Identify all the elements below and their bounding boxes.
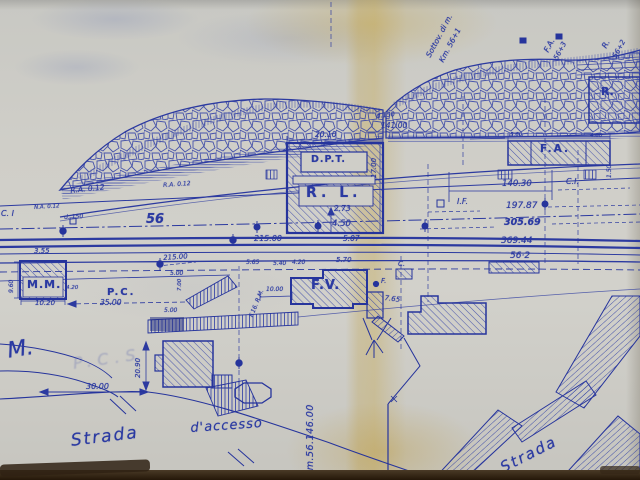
label-dim-1000: 10.00 xyxy=(266,287,283,293)
label-dim-30569: 305.69 xyxy=(504,218,541,228)
label-m-cursive: M. xyxy=(6,337,35,363)
label-dim-420-a: 4.20 xyxy=(66,286,78,292)
label-hectometer-56: 56 xyxy=(146,213,164,226)
label-dim-1020: 10.20 xyxy=(35,300,55,307)
label-dim-570: 5.70 xyxy=(336,257,352,264)
label-building-dpt: D.P.T. xyxy=(311,155,346,165)
label-dim-14030: 140.30 xyxy=(502,180,532,189)
label-dim-273: 2.73 xyxy=(334,205,351,213)
label-dim-3000: 30.00 xyxy=(86,383,109,391)
label-ci-left: C. I xyxy=(1,210,14,218)
label-dim-19787: 197.87 xyxy=(506,202,538,211)
label-building-rl: R. L. xyxy=(306,186,361,200)
label-dim-2090: 20.90 xyxy=(135,358,142,378)
label-building-mm: M.M. xyxy=(27,279,61,290)
label-dim-355: 3.55 xyxy=(34,248,50,255)
photo-bottom-right-shadow xyxy=(600,466,640,474)
label-dim-960: 9.60 xyxy=(9,280,15,293)
label-dim-2010: 20.10 xyxy=(315,131,336,139)
label-dim-3500: 35.00 xyxy=(100,299,121,307)
label-building-pc: P.C. xyxy=(107,288,135,298)
label-dim-1700: 17.00 xyxy=(371,158,378,178)
label-f-small: F. xyxy=(381,278,386,285)
label-building-r: R. xyxy=(601,86,614,97)
label-dim-420-b: 4.20 xyxy=(292,260,305,266)
drawing-linework xyxy=(0,0,640,480)
label-dim-450: 4.50 xyxy=(332,220,351,229)
label-building-fa: F.A. xyxy=(540,144,570,155)
label-dim-507: 5.07 xyxy=(343,235,360,243)
label-dim-500-a: 5.00 xyxy=(170,271,183,277)
label-c-small: C. xyxy=(398,261,405,268)
label-d150-top: d.150 xyxy=(376,111,395,119)
label-ci-right: C.I. xyxy=(566,178,579,186)
label-dim-565: 5.65 xyxy=(246,260,259,266)
label-dim-141: 141.00 xyxy=(381,122,407,130)
blueprint-photo: Sottov. di m. Km. 56+1 F.A. 56+3 R. 56+2… xyxy=(0,0,640,480)
label-dim-500-b: 5.00 xyxy=(164,308,177,314)
label-dim-21500-center: 215.00 xyxy=(254,235,282,243)
label-hectometer-562: 56·2 xyxy=(510,252,530,261)
label-dim-150-vertical: 1.50 xyxy=(607,165,613,178)
label-d150-left: d. 150 xyxy=(64,214,83,221)
label-dim-560: 5.60 xyxy=(510,133,522,139)
label-km-post: Km.56.146.00 xyxy=(306,404,316,477)
label-dim-540: 5.40 xyxy=(273,261,286,267)
label-building-fv: F.V. xyxy=(311,279,340,292)
label-if: I.F. xyxy=(457,198,468,206)
label-dim-460: 4.60 xyxy=(590,134,602,140)
label-dim-36944: 369.44 xyxy=(501,237,533,246)
label-dim-700: 7.00 xyxy=(178,279,184,291)
